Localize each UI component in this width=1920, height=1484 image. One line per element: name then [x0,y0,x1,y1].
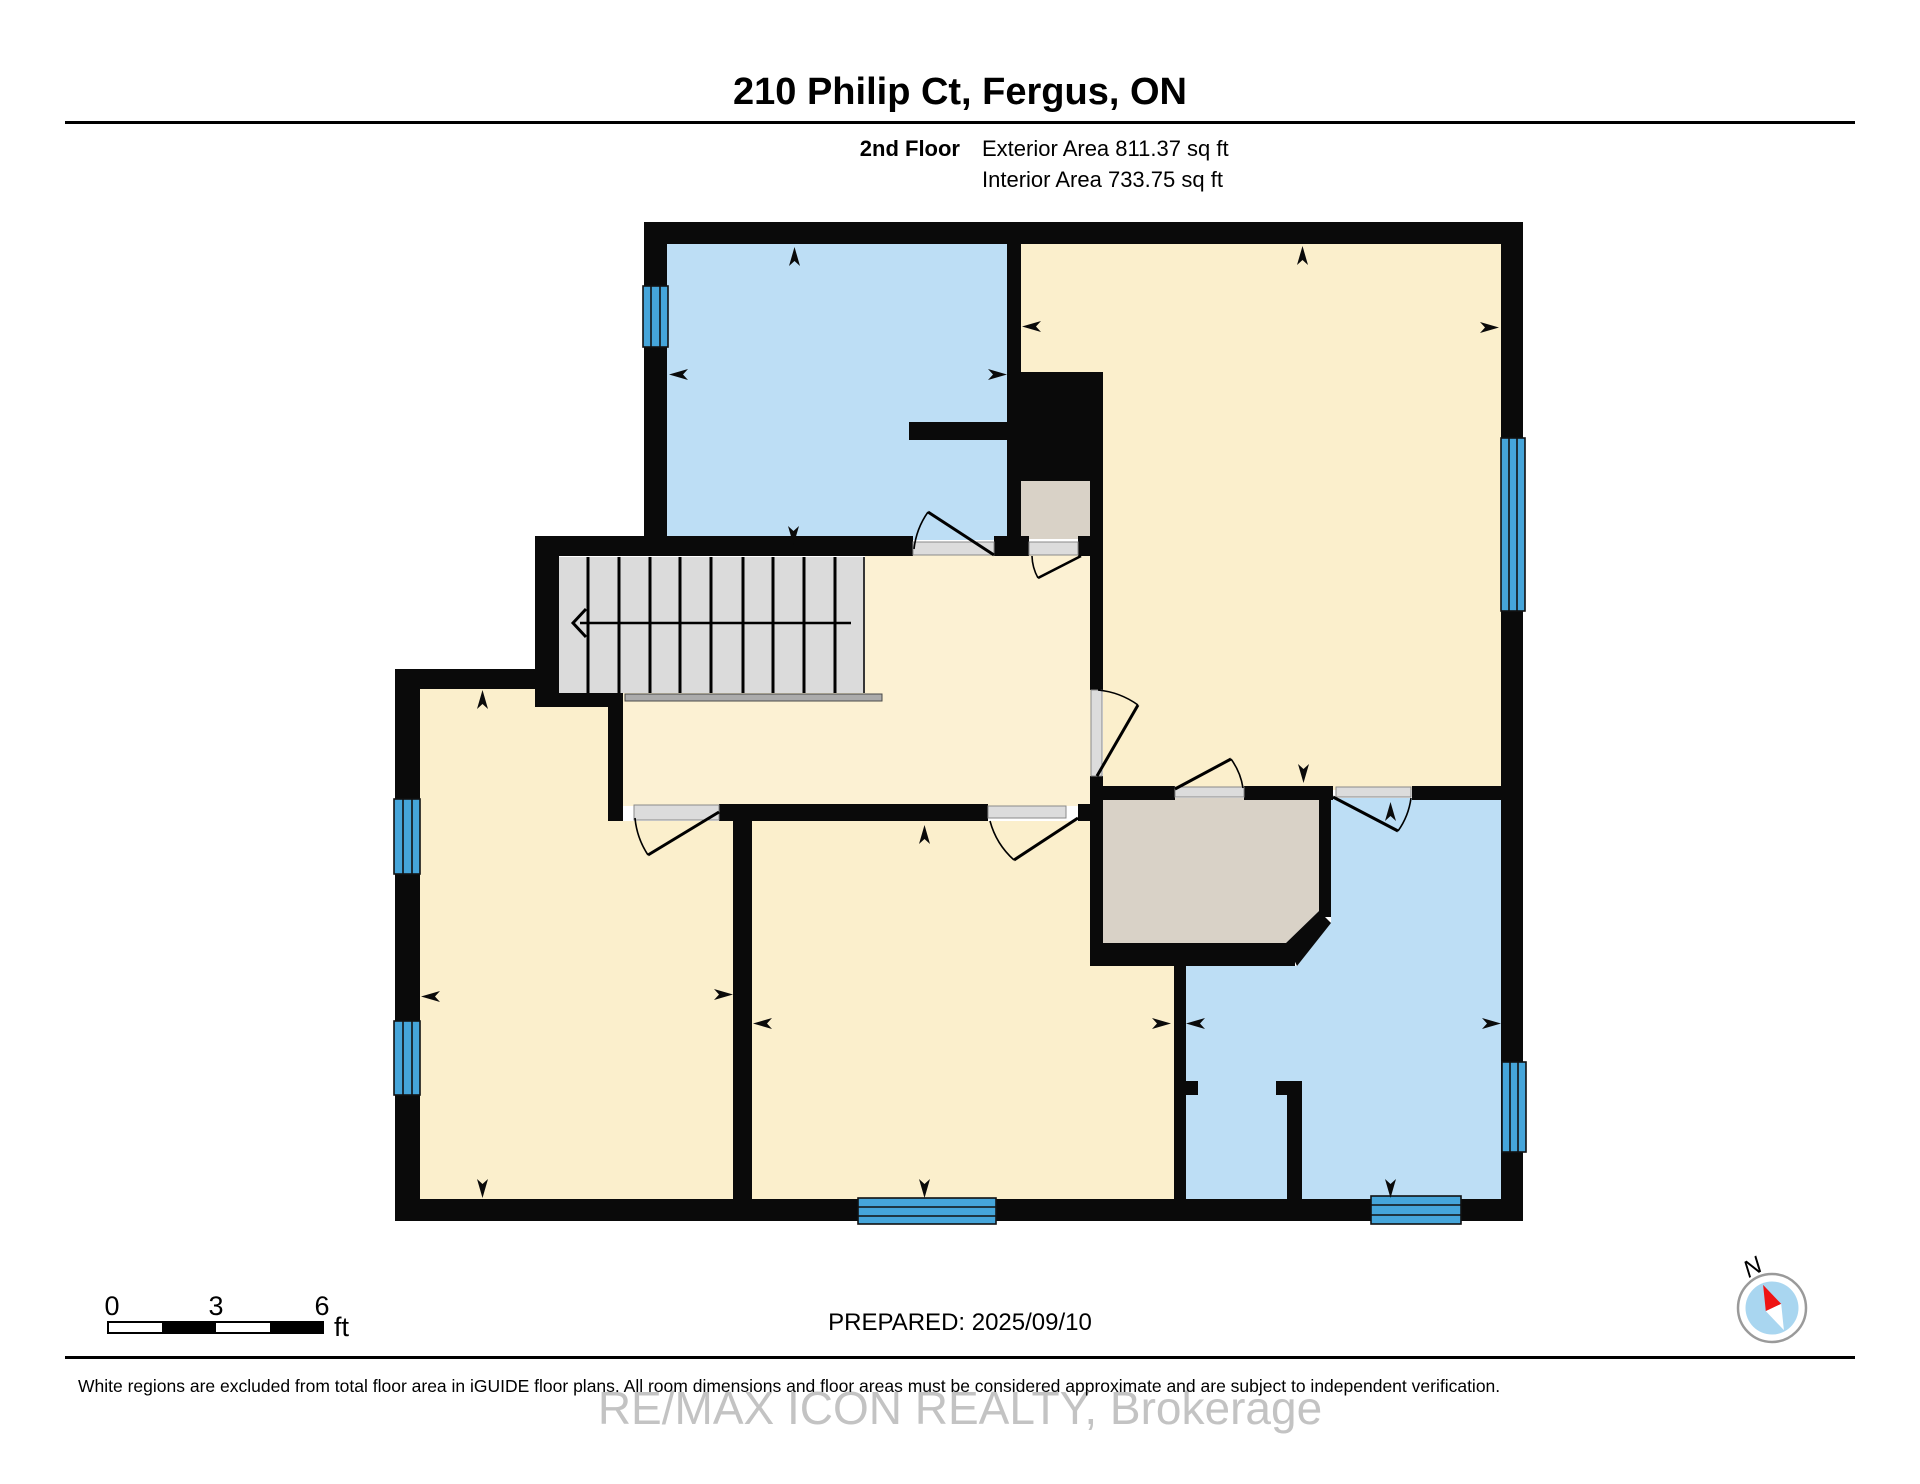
svg-text:PREPARED: 2025/09/10: PREPARED: 2025/09/10 [828,1309,1092,1336]
svg-text:White regions are excluded fro: White regions are excluded from total fl… [78,1376,1500,1396]
svg-text:3: 3 [208,1291,223,1321]
svg-text:210 Philip Ct, Fergus, ON: 210 Philip Ct, Fergus, ON [733,71,1187,113]
svg-text:ft: ft [334,1312,350,1342]
svg-text:Interior Area 733.75 sq ft: Interior Area 733.75 sq ft [982,167,1223,192]
svg-text:Exterior Area 811.37 sq ft: Exterior Area 811.37 sq ft [982,136,1229,161]
svg-text:2nd Floor: 2nd Floor [860,136,961,161]
svg-text:0: 0 [104,1291,119,1321]
svg-text:6: 6 [314,1291,329,1321]
